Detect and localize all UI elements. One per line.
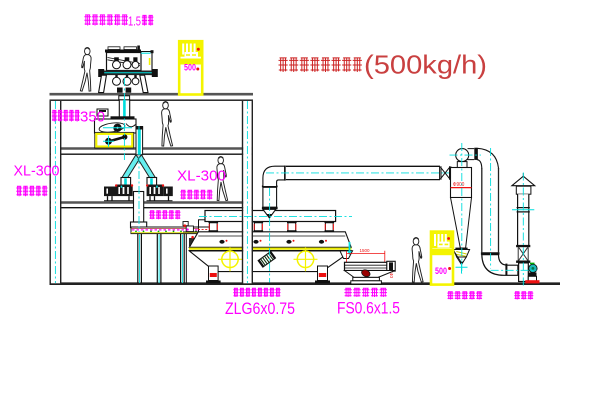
svg-text:XL-300: XL-300	[14, 163, 60, 180]
svg-text:350: 350	[80, 109, 105, 126]
svg-text:500: 500	[435, 266, 447, 276]
svg-text:1500: 1500	[360, 248, 370, 253]
svg-text:ZLG6x0.75: ZLG6x0.75	[225, 300, 295, 318]
svg-text:XL-300: XL-300	[177, 168, 226, 185]
svg-text:1.5: 1.5	[128, 14, 141, 29]
svg-text:FS0.6x1.5: FS0.6x1.5	[337, 300, 400, 318]
svg-text:(500kg/h): (500kg/h)	[364, 50, 487, 80]
svg-text:500: 500	[184, 63, 196, 73]
